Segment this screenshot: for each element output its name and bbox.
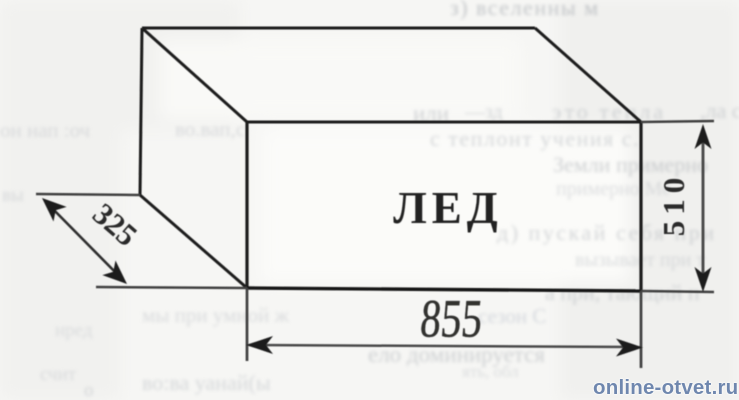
svg-text:счит: счит: [40, 364, 77, 385]
svg-text:,ла с: ,ла с: [700, 98, 739, 123]
svg-text:855: 855: [418, 289, 485, 349]
svg-text:с теплонт учения с.: с теплонт учения с.: [430, 126, 640, 151]
svg-text:—зд: —зд: [464, 101, 503, 123]
svg-text:он нап :оч: он нап :оч: [0, 118, 91, 142]
svg-text:вы: вы: [2, 185, 24, 206]
svg-text:примерно Ме: примерно Ме: [556, 178, 671, 200]
svg-text:мы при умной ж: мы при умной ж: [142, 303, 290, 327]
svg-text:во.вап,с: во.вап,с: [175, 117, 245, 141]
svg-text:во:ва уанай(ы: во:ва уанай(ы: [142, 370, 271, 395]
svg-text:з) вселенны м: з) вселенны м: [450, 0, 600, 20]
svg-text:510: 510: [656, 172, 691, 237]
svg-text:нред: нред: [55, 320, 93, 341]
svg-text:о: о: [84, 380, 94, 400]
svg-text:ять, обл: ять, обл: [462, 362, 519, 381]
svg-text:ЛЕД: ЛЕД: [393, 183, 503, 233]
svg-text:сезон С: сезон С: [478, 304, 546, 328]
svg-text:это тепла: это тепла: [552, 99, 666, 124]
